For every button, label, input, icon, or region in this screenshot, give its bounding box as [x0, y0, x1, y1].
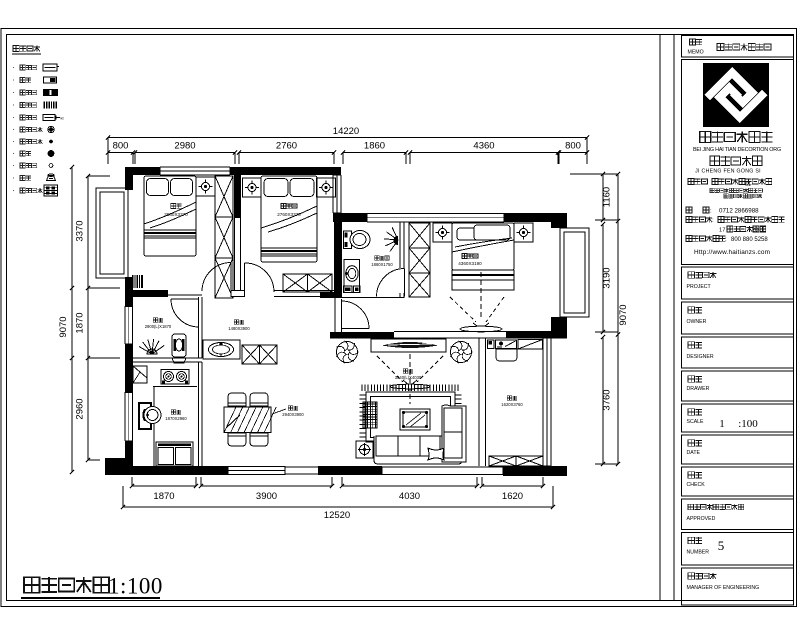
svg-text:1480X3900: 1480X3900	[228, 326, 250, 331]
svg-text:OWNER: OWNER	[687, 319, 707, 325]
svg-text:1870: 1870	[153, 491, 174, 502]
svg-text:Http://www.haitianzs.com: Http://www.haitianzs.com	[694, 249, 770, 256]
svg-text:4360X3190: 4360X3190	[458, 261, 482, 266]
svg-text:DATE: DATE	[687, 450, 701, 456]
svg-text:61: 61	[745, 182, 751, 188]
svg-text:800: 800	[113, 141, 129, 152]
svg-text:DRAWER: DRAWER	[687, 386, 710, 392]
svg-text:BEI JING HAI TIAN DECORTION OR: BEI JING HAI TIAN DECORTION ORG	[693, 147, 781, 153]
svg-text:800: 800	[565, 141, 581, 152]
svg-text:2760X3370: 2760X3370	[277, 212, 301, 217]
svg-text:17: 17	[719, 228, 725, 234]
svg-text:12520: 12520	[324, 510, 350, 521]
svg-text:9070: 9070	[58, 316, 69, 337]
svg-text:2900(L)X1870: 2900(L)X1870	[145, 324, 172, 329]
svg-text:CHECK: CHECK	[687, 482, 706, 488]
svg-text:0712 2866988: 0712 2866988	[719, 208, 759, 215]
svg-text:4360: 4360	[473, 141, 494, 152]
svg-text:3840(L)X4030: 3840(L)X4030	[395, 375, 422, 380]
svg-text:9070: 9070	[618, 304, 629, 325]
svg-text:1:100: 1:100	[108, 574, 163, 599]
svg-text:5: 5	[718, 538, 725, 553]
svg-text:1860: 1860	[364, 141, 385, 152]
svg-text:3370: 3370	[75, 220, 86, 241]
svg-text:14220: 14220	[333, 126, 359, 137]
svg-text:1620X3760: 1620X3760	[501, 402, 523, 407]
svg-text::100: :100	[738, 418, 758, 430]
svg-text:1: 1	[719, 418, 725, 430]
svg-text:1860X1750: 1860X1750	[371, 262, 393, 267]
svg-text:PROJECT: PROJECT	[687, 284, 712, 290]
svg-text:3900: 3900	[256, 491, 277, 502]
svg-text:DESIGNER: DESIGNER	[687, 354, 714, 360]
svg-text:MEMO: MEMO	[688, 50, 704, 56]
svg-text:2960: 2960	[75, 398, 86, 419]
svg-text:JI CHENG FEN GONG SI: JI CHENG FEN GONG SI	[695, 169, 761, 175]
svg-text:SCALE: SCALE	[687, 419, 705, 425]
svg-text:2940X3900: 2940X3900	[282, 412, 304, 417]
svg-text:2760: 2760	[276, 141, 297, 152]
svg-text:2980: 2980	[174, 141, 195, 152]
svg-text:NUMBER: NUMBER	[687, 550, 710, 556]
svg-text:2980X3370: 2980X3370	[164, 212, 188, 217]
svg-text:1870: 1870	[75, 312, 86, 333]
svg-text:800 880 5258: 800 880 5258	[731, 237, 768, 243]
svg-text:1620: 1620	[502, 491, 523, 502]
svg-text:1870X2960: 1870X2960	[165, 416, 187, 421]
svg-text:APPROVED: APPROVED	[687, 516, 716, 522]
svg-text:MANAGER OF ENGINEERING: MANAGER OF ENGINEERING	[687, 585, 760, 591]
svg-text:4030: 4030	[399, 491, 420, 502]
svg-text:20: 20	[752, 228, 758, 234]
